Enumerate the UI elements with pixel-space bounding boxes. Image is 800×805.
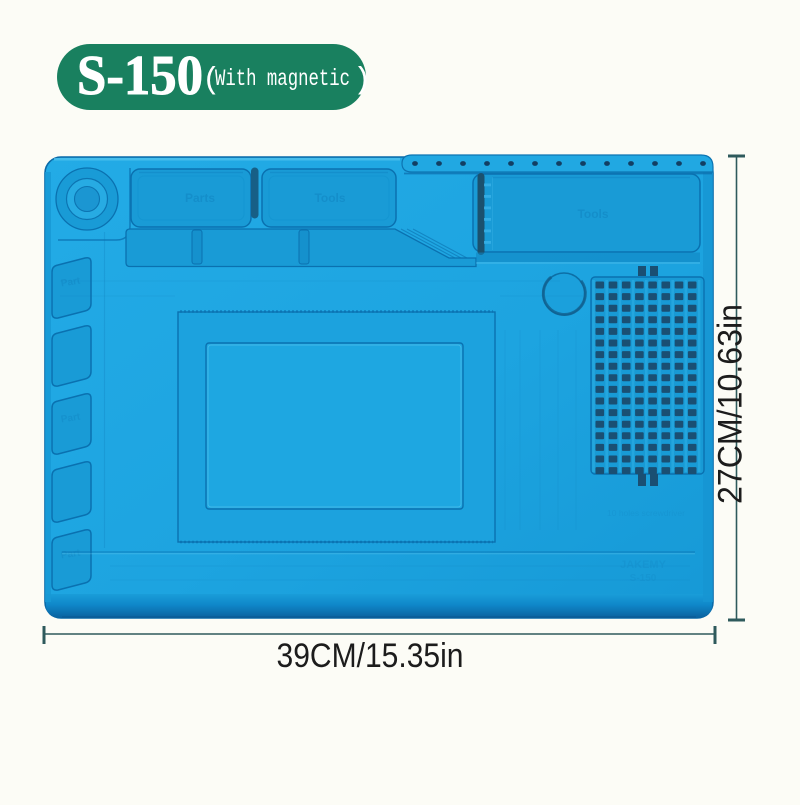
svg-text:Tools: Tools [314, 191, 345, 205]
svg-text:27CM/10.63in: 27CM/10.63in [712, 304, 750, 504]
svg-text:S-150: S-150 [77, 45, 203, 107]
svg-text:JAKEMY: JAKEMY [620, 559, 667, 571]
svg-text:Tools: Tools [577, 207, 608, 221]
svg-text:With magnetic: With magnetic [215, 66, 350, 92]
svg-text:S-150: S-150 [630, 573, 657, 584]
svg-text:10 holes screwdriver: 10 holes screwdriver [607, 508, 685, 518]
svg-text:39CM/15.35in: 39CM/15.35in [277, 637, 464, 675]
svg-text:): ) [353, 63, 372, 98]
svg-text:Parts: Parts [185, 191, 215, 205]
